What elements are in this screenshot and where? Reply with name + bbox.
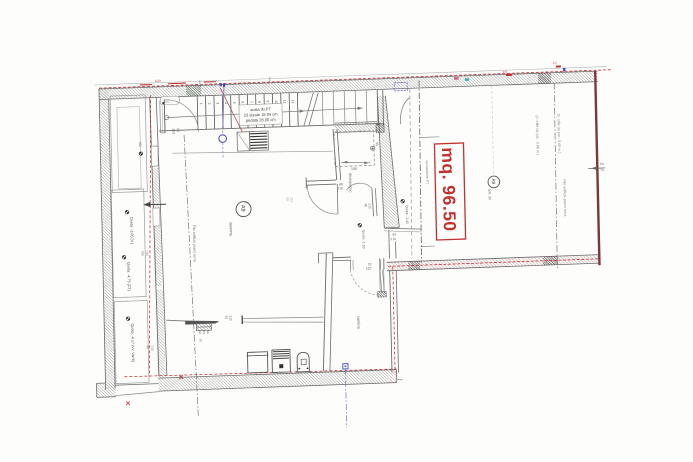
svg-text:2: 2	[207, 103, 211, 105]
svg-text:A9: A9	[491, 178, 496, 184]
svg-text:210: 210	[290, 197, 294, 203]
svg-text:6: 6	[241, 101, 245, 103]
svg-text:Filo edificio piano terra: Filo edificio piano terra	[562, 179, 567, 217]
svg-text:disimpegno: disimpegno	[348, 173, 352, 193]
svg-text:210: 210	[150, 345, 154, 351]
svg-text:sovrastante PT: sovrastante PT	[425, 160, 430, 185]
svg-text:+20: +20	[145, 250, 149, 256]
svg-text:taverna: taverna	[229, 222, 234, 236]
svg-text:50: 50	[600, 162, 604, 166]
svg-text:9: 9	[266, 100, 270, 102]
svg-text:360: 360	[138, 142, 142, 148]
svg-text:5: 5	[232, 102, 236, 104]
svg-text:Filo edificio piano terra: Filo edificio piano terra	[192, 225, 197, 263]
svg-text:8: 8	[257, 101, 261, 103]
svg-text:74: 74	[600, 168, 604, 172]
svg-text:55: 55	[224, 316, 228, 320]
svg-text:160: 160	[141, 251, 145, 257]
svg-text:cantina: cantina	[356, 316, 361, 330]
svg-text:Quota: -1.45: Quota: -1.45	[405, 205, 409, 224]
svg-text:50: 50	[199, 339, 203, 343]
svg-text:7: 7	[249, 101, 253, 103]
svg-text:210: 210	[366, 266, 372, 270]
svg-text:3: 3	[216, 102, 220, 104]
svg-text:3.20: 3.20	[155, 79, 161, 83]
svg-text:210: 210	[368, 203, 372, 209]
svg-text:190: 190	[351, 167, 357, 171]
svg-text:11: 11	[282, 100, 286, 104]
svg-text:310: 310	[171, 128, 175, 134]
svg-text:3.2: 3.2	[553, 61, 557, 65]
svg-text:210: 210	[337, 186, 343, 190]
svg-text:90: 90	[286, 197, 290, 201]
svg-text:80: 80	[392, 232, 396, 236]
svg-text:Quota: -1.50: Quota: -1.50	[361, 230, 365, 249]
svg-text:terr. 33: terr. 33	[488, 189, 492, 200]
svg-text:210: 210	[229, 315, 233, 321]
svg-text:90: 90	[146, 345, 150, 349]
svg-text:p.q.: p.q.	[503, 69, 508, 73]
svg-text:Quota: -4.75 (CT): Quota: -4.75 (CT)	[126, 262, 131, 291]
svg-text:60: 60	[176, 128, 180, 132]
svg-text:mq. 96.50: mq. 96.50	[438, 147, 460, 232]
svg-text:210: 210	[390, 237, 396, 241]
svg-text:A9: A9	[239, 205, 245, 212]
svg-text:12: 12	[291, 100, 295, 104]
svg-text:Quota: -3.05 (V.): Quota: -3.05 (V.)	[129, 217, 134, 244]
svg-text:90: 90	[375, 142, 379, 146]
svg-text:Quota: -4.17 (Vv. Var.5): Quota: -4.17 (Vv. Var.5)	[130, 323, 135, 362]
svg-text:1: 1	[199, 103, 203, 105]
svg-text:4: 4	[224, 102, 228, 104]
svg-text:86: 86	[364, 203, 368, 207]
